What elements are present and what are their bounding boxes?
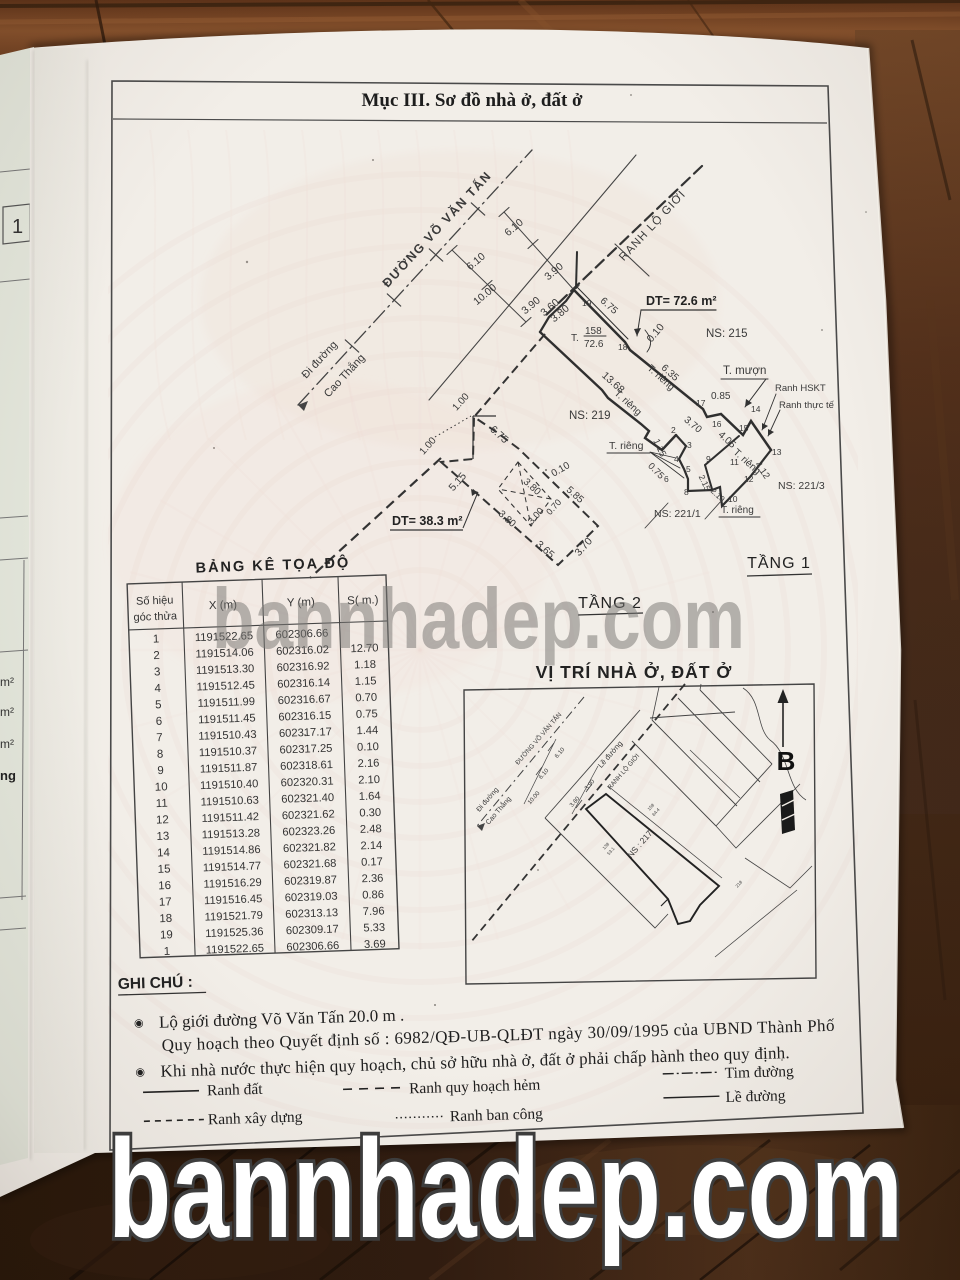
svg-text:bannhadep.com: bannhadep.com bbox=[108, 1110, 903, 1267]
svg-text:bannhadep.com: bannhadep.com bbox=[212, 572, 745, 667]
